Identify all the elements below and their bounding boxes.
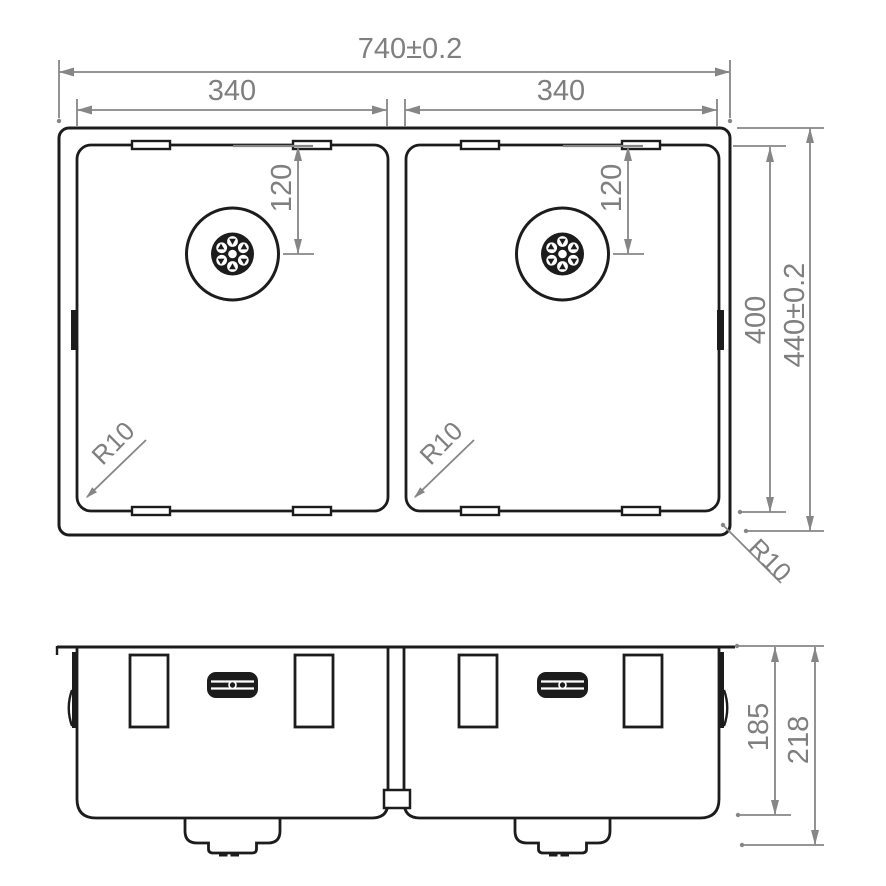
drain-right xyxy=(517,208,609,300)
side-clip-left xyxy=(71,310,78,350)
label-drain-offset-left: 120 xyxy=(266,164,298,212)
label-inner-length: 400 xyxy=(740,296,772,344)
label-overall-length: 440±0.2 xyxy=(779,263,811,368)
clip-tab xyxy=(461,141,499,149)
clip-tab xyxy=(132,141,170,149)
clip-tab xyxy=(622,507,660,515)
drain-left xyxy=(187,208,279,300)
clip-tab xyxy=(293,507,331,515)
drawing-canvas: 740±0.2 340 340 120 120 400 440±0.2 R10 … xyxy=(0,0,886,886)
clip-bracket xyxy=(130,655,168,727)
bowl-right-outline xyxy=(406,145,719,511)
label-overall-depth: 218 xyxy=(783,716,815,764)
clip-bracket xyxy=(295,655,333,727)
drain-fitting-left xyxy=(185,818,280,857)
waste-fitting-right xyxy=(537,672,588,698)
label-overall-width: 740±0.2 xyxy=(358,33,463,65)
clip-tab xyxy=(132,507,170,515)
bowl-left-outline xyxy=(77,145,388,511)
drain-fitting-right xyxy=(515,818,610,857)
sink-technical-drawing: 740±0.2 340 340 120 120 400 440±0.2 R10 … xyxy=(0,0,886,886)
label-bowl-width-right: 340 xyxy=(537,75,585,107)
dim-overall-width xyxy=(57,60,732,123)
side-clip-front-left xyxy=(69,652,78,728)
front-view: 185 218 xyxy=(57,644,824,857)
side-clip-right xyxy=(717,310,724,350)
label-drain-offset-right: 120 xyxy=(596,164,628,212)
clip-bracket xyxy=(624,655,662,727)
clip-tab xyxy=(461,507,499,515)
divider-foot xyxy=(384,790,410,808)
clip-bracket xyxy=(459,655,497,727)
side-clip-front-right xyxy=(718,652,727,728)
label-bowl-width-left: 340 xyxy=(208,75,256,107)
label-outer-radius: R10 xyxy=(743,533,798,588)
top-view: 740±0.2 340 340 120 120 400 440±0.2 R10 … xyxy=(57,33,824,587)
waste-fitting-left xyxy=(207,672,258,698)
label-bowl-depth: 185 xyxy=(743,703,775,751)
